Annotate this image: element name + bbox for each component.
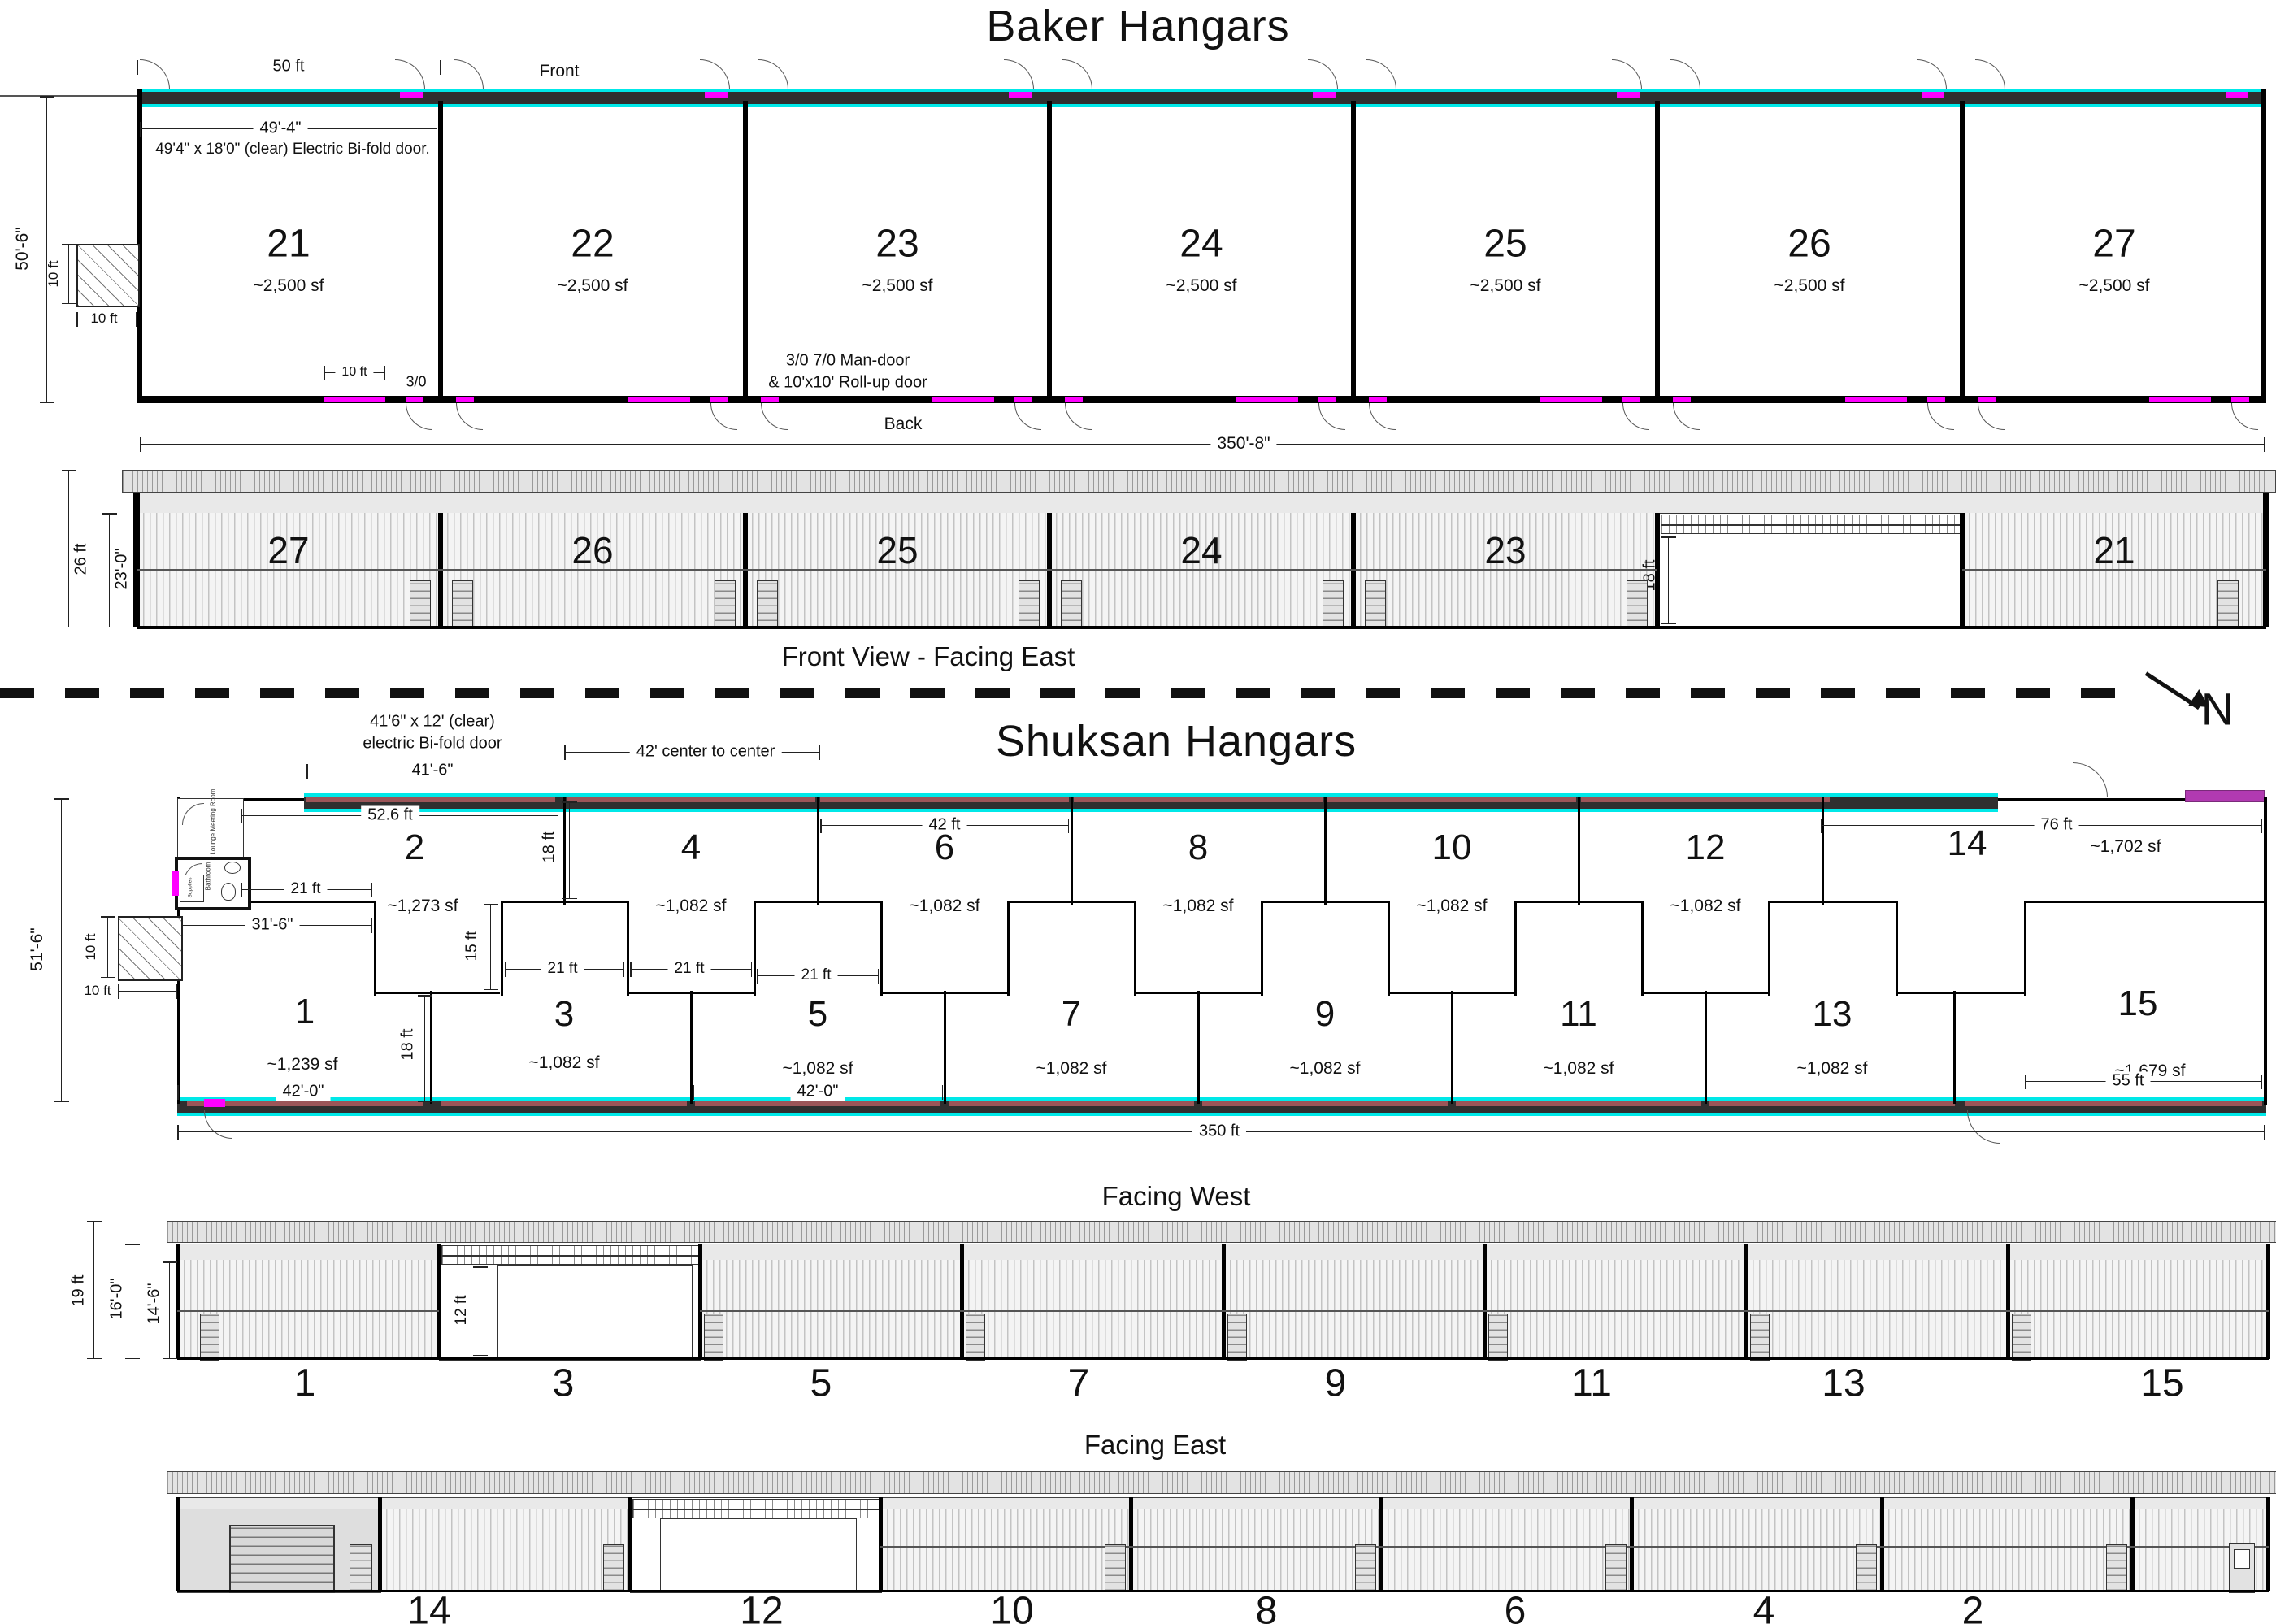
door-swing-arc bbox=[1062, 59, 1092, 89]
unit-area: ~1,082 sf bbox=[783, 1059, 853, 1079]
corrugated-bay bbox=[1131, 1509, 1381, 1591]
wall bbox=[879, 1497, 883, 1591]
unit-area: ~1,082 sf bbox=[1670, 897, 1741, 916]
wall bbox=[438, 101, 443, 396]
bay-number: 3 bbox=[553, 1361, 575, 1406]
door-window bbox=[2234, 1549, 2250, 1569]
bifold-door-segment bbox=[1456, 1101, 1701, 1106]
man-door bbox=[452, 580, 473, 629]
door-swing-arc bbox=[1612, 59, 1642, 89]
dim-label: 16'-0" bbox=[108, 1279, 127, 1320]
wall bbox=[2024, 901, 2026, 996]
unit-number: 21 bbox=[267, 222, 310, 267]
bay-number: 13 bbox=[1822, 1361, 1865, 1406]
ground-line bbox=[137, 626, 2266, 629]
door-swing-arc bbox=[454, 59, 484, 89]
bay-number: 11 bbox=[1571, 1361, 1612, 1406]
door-swing-arc bbox=[1978, 403, 2005, 430]
corrugated-bay bbox=[1746, 1260, 2008, 1359]
dim-label: 21 ft bbox=[795, 966, 838, 984]
unit-area: ~1,082 sf bbox=[1163, 897, 1234, 916]
wall bbox=[698, 1244, 702, 1359]
unit-area: ~2,500 sf bbox=[1774, 276, 1845, 296]
man-door bbox=[966, 1314, 985, 1361]
bay-number: 26 bbox=[571, 528, 613, 572]
man-door-marker bbox=[204, 1099, 225, 1107]
girt-line bbox=[700, 1310, 2269, 1312]
man-door bbox=[350, 1544, 372, 1591]
door-swing-arc bbox=[204, 1110, 232, 1139]
bay-number: 12 bbox=[740, 1589, 783, 1624]
man-door-marker bbox=[172, 871, 179, 896]
wall bbox=[1655, 101, 1660, 396]
man-door-marker bbox=[1927, 397, 1945, 402]
dim-label: 18 ft bbox=[541, 832, 559, 863]
man-door-size-label: 3/0 bbox=[406, 374, 426, 391]
dim-label: 12 ft bbox=[453, 1296, 471, 1326]
man-door-marker bbox=[1978, 397, 1996, 402]
dim-line bbox=[132, 1244, 132, 1359]
wall bbox=[176, 1497, 180, 1591]
shuksan-title: Shuksan Hangars bbox=[996, 716, 1357, 766]
wall bbox=[1009, 901, 1134, 903]
wall bbox=[817, 797, 819, 905]
wall bbox=[628, 992, 754, 994]
corrugated-bay bbox=[1223, 1260, 1484, 1359]
dim-label: 18 ft bbox=[399, 1029, 418, 1061]
dim-label: 42'-0" bbox=[276, 1083, 331, 1101]
bifold-door-note: 49'4" x 18'0" (clear) Electric Bi-fold d… bbox=[155, 141, 430, 158]
dim-line bbox=[424, 995, 425, 1102]
door-swing-arc bbox=[1975, 59, 2005, 89]
rollup-door-marker bbox=[628, 397, 690, 402]
wall bbox=[503, 901, 627, 903]
unit-area: ~1,239 sf bbox=[267, 1055, 338, 1075]
bifold-door-segment bbox=[1074, 797, 1323, 802]
facing-west-title: Facing West bbox=[1102, 1181, 1251, 1212]
wall bbox=[627, 901, 629, 996]
man-door bbox=[1061, 580, 1082, 629]
dim-label: 21 ft bbox=[541, 960, 584, 978]
wall bbox=[2266, 1497, 2270, 1591]
roof-band bbox=[122, 470, 2276, 493]
roof-band bbox=[167, 1221, 2276, 1243]
dim-label: 350 ft bbox=[1192, 1122, 1246, 1141]
room-label: Bathroom bbox=[205, 862, 212, 891]
wall bbox=[1514, 901, 1517, 996]
wall bbox=[1134, 901, 1136, 996]
dim-label: 26 ft bbox=[72, 544, 91, 575]
wall bbox=[1483, 1244, 1487, 1359]
unit-number: 5 bbox=[808, 994, 827, 1035]
rollup-door-marker bbox=[2185, 790, 2265, 802]
unit-area: ~1,082 sf bbox=[1290, 1059, 1361, 1079]
door-swing-arc bbox=[1004, 59, 1034, 89]
man-door-marker bbox=[1673, 397, 1691, 402]
facing-east-title: Facing East bbox=[1084, 1430, 1226, 1461]
corrugated-bay bbox=[380, 1509, 630, 1591]
man-door-marker bbox=[761, 397, 779, 402]
man-door bbox=[715, 580, 736, 629]
property-divider-dashed-line bbox=[0, 688, 2130, 698]
man-door bbox=[410, 580, 431, 629]
man-door bbox=[2106, 1544, 2127, 1591]
rollup-door bbox=[229, 1525, 335, 1593]
man-door-with-window bbox=[2229, 1543, 2255, 1593]
wall bbox=[133, 493, 140, 627]
unit-number: 12 bbox=[1686, 827, 1726, 868]
room-label: Supplies bbox=[188, 878, 193, 898]
unit-area: ~2,500 sf bbox=[2079, 276, 2150, 296]
dim-line bbox=[490, 904, 491, 990]
girt-line bbox=[177, 1310, 439, 1312]
man-door bbox=[603, 1544, 624, 1591]
dim-label: 21 ft bbox=[668, 960, 711, 978]
back-label: Back bbox=[884, 415, 923, 434]
unit-area: ~1,082 sf bbox=[1797, 1059, 1868, 1079]
bay-number: 15 bbox=[2140, 1361, 2183, 1406]
unit-number: 23 bbox=[875, 222, 919, 267]
man-door bbox=[1323, 580, 1344, 629]
dim-label: 10 ft bbox=[335, 365, 373, 380]
man-door bbox=[757, 580, 778, 629]
bifold-door-note: 41'6" x 12' (clear) bbox=[370, 713, 495, 732]
wall bbox=[882, 992, 1007, 994]
door-swing-arc bbox=[700, 59, 730, 89]
unit-number: 22 bbox=[571, 222, 614, 267]
concrete-pad bbox=[118, 916, 183, 981]
toilet-icon bbox=[221, 883, 236, 901]
door-swing-arc bbox=[2073, 762, 2108, 797]
bifold-door-segment bbox=[306, 797, 555, 802]
bay-number: 6 bbox=[1505, 1589, 1527, 1624]
man-door-marker bbox=[1318, 397, 1336, 402]
door-swing-arc bbox=[1967, 1110, 2000, 1144]
wall bbox=[1578, 797, 1580, 905]
unit-area: ~1,702 sf bbox=[2091, 837, 2161, 857]
bay-number: 25 bbox=[876, 528, 918, 572]
man-door bbox=[704, 1314, 723, 1361]
girt-line bbox=[880, 1546, 2269, 1548]
wall bbox=[1822, 797, 1824, 905]
bay-number: 27 bbox=[267, 528, 309, 572]
dim-line bbox=[61, 798, 62, 1102]
wall bbox=[2024, 901, 2266, 903]
wall bbox=[437, 1244, 441, 1359]
dim-label: 49'-4" bbox=[254, 119, 308, 138]
unit-number: 4 bbox=[681, 827, 701, 868]
bay-number: 24 bbox=[1180, 528, 1222, 572]
wall bbox=[1136, 992, 1261, 994]
dim-line bbox=[140, 444, 2265, 445]
corrugated-bay bbox=[1381, 1509, 1631, 1591]
bifold-door-segment bbox=[1709, 1101, 1955, 1106]
bay-number: 14 bbox=[407, 1589, 450, 1624]
unit-number: 26 bbox=[1787, 222, 1831, 267]
door-swing-arc bbox=[1014, 403, 1041, 430]
corrugated-bay bbox=[700, 1260, 962, 1359]
wall bbox=[1324, 797, 1327, 905]
man-door-note: 3/0 7/0 Man-door bbox=[786, 352, 910, 371]
dim-line bbox=[169, 1261, 170, 1359]
unit-area: ~1,273 sf bbox=[388, 897, 458, 916]
wall bbox=[743, 101, 748, 396]
corrugated-bay bbox=[962, 1260, 1223, 1359]
dim-label: 15 ft bbox=[463, 931, 481, 962]
door-swing-arc bbox=[1927, 403, 1954, 430]
dim-label: 31'-6" bbox=[245, 916, 300, 935]
dim-label: 76 ft bbox=[2035, 816, 2079, 835]
corrugated-bay bbox=[1882, 1509, 2132, 1591]
door-swing-arc bbox=[758, 59, 788, 89]
wall bbox=[1129, 1497, 1133, 1591]
bay-number: 7 bbox=[1068, 1361, 1090, 1406]
unit-area: ~2,500 sf bbox=[1166, 276, 1237, 296]
wall bbox=[378, 1497, 382, 1591]
concrete-pad bbox=[76, 244, 140, 307]
wall bbox=[375, 992, 500, 994]
dim-label: 51'-6" bbox=[28, 927, 47, 971]
dim-label: 23'-0" bbox=[113, 549, 132, 590]
man-door bbox=[1488, 1314, 1508, 1361]
bay-number: 10 bbox=[990, 1589, 1033, 1624]
wall bbox=[1351, 101, 1356, 396]
extension-line bbox=[0, 95, 137, 97]
man-door-marker bbox=[1369, 397, 1387, 402]
window-marker bbox=[705, 92, 728, 98]
folded-bifold-panels bbox=[1661, 515, 1961, 534]
bay-number: 1 bbox=[294, 1361, 316, 1406]
front-label: Front bbox=[539, 62, 579, 81]
unit-number: 27 bbox=[2092, 222, 2135, 267]
rollup-door-marker bbox=[1845, 397, 1907, 402]
bay-number: 5 bbox=[810, 1361, 832, 1406]
wall bbox=[501, 901, 503, 996]
wall bbox=[755, 901, 880, 903]
unit-number: 15 bbox=[2118, 984, 2158, 1024]
dim-line bbox=[46, 96, 47, 403]
wall bbox=[1389, 992, 1514, 994]
wall bbox=[1630, 1497, 1634, 1591]
bifold-door-segment bbox=[441, 1101, 687, 1106]
wall bbox=[754, 901, 756, 996]
door-swing-arc bbox=[1622, 403, 1649, 430]
door-swing-arc bbox=[1318, 403, 1345, 430]
wall bbox=[1705, 991, 1707, 1104]
window-marker bbox=[1922, 92, 1944, 98]
door-swing-arc bbox=[1670, 59, 1700, 89]
unit-area: ~1,082 sf bbox=[1417, 897, 1488, 916]
dim-label: 42'-0" bbox=[791, 1083, 845, 1101]
wall bbox=[1222, 1244, 1226, 1359]
baker-front-wall-bifold bbox=[137, 89, 2266, 107]
dim-label: 42' center to center bbox=[630, 743, 782, 762]
bifold-door-segment bbox=[1581, 797, 1830, 802]
wall bbox=[2266, 1244, 2270, 1359]
unit-area: ~2,500 sf bbox=[558, 276, 628, 296]
wall bbox=[2261, 89, 2266, 403]
window-marker bbox=[1617, 92, 1640, 98]
unit-area: ~2,500 sf bbox=[1470, 276, 1541, 296]
dim-label: 10 ft bbox=[77, 983, 117, 999]
wall bbox=[1261, 901, 1263, 996]
bifold-door-segment bbox=[695, 1101, 940, 1106]
dim-label: 50 ft bbox=[267, 58, 311, 76]
ground-line bbox=[177, 1590, 2269, 1592]
folded-bifold-panels bbox=[441, 1245, 699, 1265]
baker-elev-title: Front View - Facing East bbox=[782, 641, 1075, 672]
door-swing-arc bbox=[456, 403, 483, 430]
unit-area: ~1,082 sf bbox=[1544, 1059, 1614, 1079]
door-swing-arc bbox=[761, 403, 788, 430]
dim-label: 55 ft bbox=[2106, 1072, 2151, 1091]
unit-number: 9 bbox=[1315, 994, 1335, 1035]
unit-number: 7 bbox=[1062, 994, 1081, 1035]
door-swing-arc bbox=[395, 59, 425, 89]
man-door-marker bbox=[456, 397, 474, 402]
wall bbox=[563, 797, 566, 905]
door-opening bbox=[660, 1518, 857, 1593]
dim-line bbox=[68, 470, 69, 627]
drawing-canvas: Baker Hangars bbox=[0, 0, 2276, 1624]
eave-band bbox=[137, 493, 2268, 514]
door-swing-arc bbox=[1673, 403, 1700, 430]
wall bbox=[1197, 991, 1200, 1104]
unit-number: 1 bbox=[295, 992, 315, 1032]
rollup-door-marker bbox=[1540, 397, 1602, 402]
man-door bbox=[1365, 580, 1386, 629]
unit-number: 11 bbox=[1560, 994, 1597, 1035]
door-swing-arc bbox=[1308, 59, 1338, 89]
unit-area: ~1,082 sf bbox=[910, 897, 980, 916]
wall bbox=[2263, 493, 2269, 627]
wall bbox=[1262, 901, 1388, 903]
man-door bbox=[1750, 1314, 1770, 1361]
man-door bbox=[1105, 1544, 1126, 1591]
bifold-door-segment bbox=[820, 797, 1069, 802]
unit-area: ~2,500 sf bbox=[862, 276, 933, 296]
door-opening bbox=[497, 1265, 693, 1361]
wall bbox=[1007, 901, 1010, 996]
unit-number: 10 bbox=[1432, 827, 1472, 868]
bifold-door-segment bbox=[1965, 1101, 2262, 1106]
corrugated-bay bbox=[880, 1509, 1131, 1591]
wall bbox=[1744, 1244, 1748, 1359]
man-door bbox=[200, 1314, 219, 1361]
door-swing-arc bbox=[710, 403, 737, 430]
dim-label: 19 ft bbox=[70, 1275, 89, 1307]
dim-label: 42 ft bbox=[923, 816, 967, 835]
bay-number: 2 bbox=[1962, 1589, 1984, 1624]
man-door-marker bbox=[2231, 397, 2249, 402]
man-door-marker bbox=[1622, 397, 1640, 402]
wall bbox=[2264, 797, 2267, 1105]
wall bbox=[1960, 101, 1965, 396]
unit-area: ~1,082 sf bbox=[656, 897, 727, 916]
wall bbox=[430, 991, 432, 1104]
bifold-door-note: electric Bi-fold door bbox=[363, 735, 502, 753]
man-door bbox=[1019, 580, 1040, 629]
unit-area: ~1,082 sf bbox=[529, 1053, 600, 1073]
bifold-door-segment bbox=[1202, 1101, 1448, 1106]
dim-line bbox=[569, 801, 570, 899]
wall bbox=[1047, 101, 1052, 396]
wall bbox=[1896, 992, 2025, 994]
dim-label: 52.6 ft bbox=[361, 806, 419, 825]
unit-number: 3 bbox=[554, 994, 574, 1035]
bay-number: 21 bbox=[2093, 528, 2135, 572]
dim-label: 21 ft bbox=[284, 880, 328, 898]
bifold-door-segment bbox=[567, 797, 815, 802]
sink-icon bbox=[224, 862, 241, 874]
rollup-door-marker bbox=[932, 397, 994, 402]
corrugated-bay bbox=[1484, 1260, 1746, 1359]
unit-number: 25 bbox=[1483, 222, 1527, 267]
door-swing-arc bbox=[2231, 403, 2258, 430]
bay-number: 23 bbox=[1484, 528, 1526, 572]
man-door-note: & 10'x10' Roll-up door bbox=[768, 374, 927, 393]
ground-line bbox=[177, 1357, 2269, 1360]
bay-number: 8 bbox=[1256, 1589, 1278, 1624]
wall bbox=[880, 901, 883, 996]
dim-label: 10 ft bbox=[84, 310, 124, 327]
wall bbox=[1451, 991, 1453, 1104]
unit-number: 13 bbox=[1813, 994, 1853, 1035]
unit-number: 24 bbox=[1179, 222, 1223, 267]
dim-line bbox=[1668, 536, 1669, 624]
north-label: N bbox=[2201, 683, 2234, 736]
wall bbox=[1768, 901, 1770, 996]
man-door bbox=[1227, 1314, 1247, 1361]
door-swing-arc bbox=[406, 403, 432, 430]
bifold-door-segment bbox=[1327, 797, 1576, 802]
rollup-door-marker bbox=[324, 397, 385, 402]
man-door-marker bbox=[1014, 397, 1032, 402]
wall bbox=[2130, 1497, 2135, 1591]
unit-area: ~1,082 sf bbox=[1036, 1059, 1107, 1079]
man-door bbox=[1856, 1544, 1877, 1591]
wall bbox=[2006, 1244, 2010, 1359]
dim-line bbox=[93, 1221, 94, 1359]
dim-label: 350'-8" bbox=[1210, 434, 1276, 454]
wall bbox=[1770, 901, 1896, 903]
wall bbox=[1643, 992, 1768, 994]
wall bbox=[944, 991, 946, 1104]
dim-label: 10 ft bbox=[83, 933, 99, 960]
door-swing-arc bbox=[140, 59, 170, 89]
rollup-door-marker bbox=[2149, 397, 2211, 402]
bay-number: 4 bbox=[1753, 1589, 1775, 1624]
door-swing-arc bbox=[1065, 403, 1092, 430]
wall bbox=[1388, 901, 1390, 996]
man-door-marker bbox=[406, 397, 423, 402]
wall bbox=[1516, 901, 1641, 903]
folded-bifold-panels bbox=[632, 1499, 880, 1518]
wall bbox=[374, 901, 376, 996]
unit-number: 8 bbox=[1188, 827, 1208, 868]
man-door bbox=[2217, 580, 2239, 629]
wall bbox=[1880, 1497, 1884, 1591]
dim-line bbox=[118, 991, 177, 992]
window-marker bbox=[400, 92, 423, 98]
baker-title: Baker Hangars bbox=[986, 1, 1289, 51]
dim-label: 14'-6" bbox=[146, 1283, 164, 1325]
door-swing-arc bbox=[1917, 59, 1947, 89]
window-marker bbox=[1009, 92, 1032, 98]
dim-line bbox=[109, 513, 110, 627]
door-swing-arc bbox=[1369, 403, 1396, 430]
wall bbox=[628, 1497, 632, 1591]
